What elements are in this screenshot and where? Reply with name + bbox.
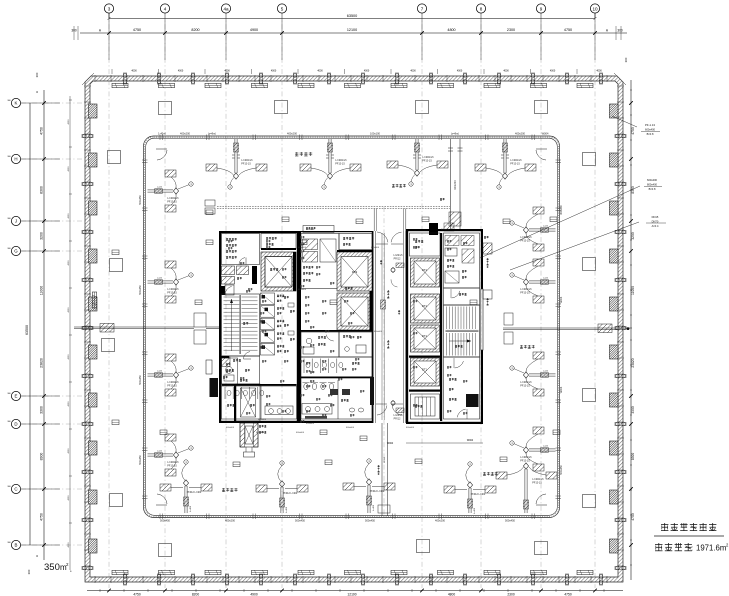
- svg-text:600x600: 600x600: [298, 247, 307, 249]
- svg-text:L=400: L=400: [373, 504, 375, 511]
- svg-text:600x600: 600x600: [258, 419, 267, 421]
- svg-text:500x450: 500x450: [139, 375, 142, 385]
- svg-text:PF10 15: PF10 15: [510, 163, 520, 166]
- svg-text:L=05: L=05: [157, 451, 163, 453]
- svg-text:4900: 4900: [250, 28, 258, 32]
- svg-text:3300: 3300: [39, 406, 43, 414]
- svg-text:W004: W004: [384, 456, 386, 462]
- svg-text:600x400: 600x400: [645, 128, 656, 132]
- svg-text:PF10 15: PF10 15: [241, 163, 251, 166]
- svg-text:600x600: 600x600: [256, 432, 265, 434]
- svg-text:4000: 4000: [364, 70, 370, 73]
- svg-text:400x200: 400x200: [225, 519, 236, 523]
- svg-text:500x450: 500x450: [139, 195, 142, 205]
- svg-text:4000: 4000: [224, 70, 230, 73]
- svg-text:PF10 15: PF10 15: [335, 163, 345, 166]
- svg-text:600x600: 600x600: [346, 427, 355, 429]
- svg-text:PF10 15: PF10 15: [422, 160, 432, 163]
- svg-text:4a: 4a: [223, 6, 229, 11]
- svg-text:600x600: 600x600: [226, 427, 235, 429]
- svg-text:4000: 4000: [68, 166, 70, 172]
- svg-text:L=400: L=400: [286, 506, 288, 513]
- svg-text:PF10 15: PF10 15: [520, 292, 530, 295]
- svg-text:600x600: 600x600: [296, 432, 305, 434]
- svg-text:4000: 4000: [503, 70, 509, 73]
- svg-text:400x200: 400x200: [515, 132, 526, 136]
- svg-text:PF10 15: PF10 15: [167, 201, 177, 204]
- svg-text:4000: 4000: [68, 401, 70, 407]
- svg-text:B: B: [15, 543, 18, 548]
- svg-text:8300: 8300: [39, 453, 43, 461]
- svg-text:600x600: 600x600: [306, 423, 315, 425]
- svg-text:3200: 3200: [631, 232, 635, 240]
- svg-text:11000: 11000: [631, 286, 635, 295]
- svg-text:DN15: DN15: [652, 215, 659, 219]
- svg-text:600x600: 600x600: [441, 229, 450, 231]
- svg-text:4800: 4800: [448, 593, 456, 596]
- svg-text:3: 3: [108, 6, 111, 11]
- svg-text:500x450: 500x450: [365, 519, 376, 523]
- svg-text:1-40x6: 1-40x6: [158, 132, 166, 136]
- svg-text:4750: 4750: [631, 127, 635, 135]
- svg-text:G: G: [14, 249, 18, 254]
- svg-text:500x450: 500x450: [295, 519, 306, 523]
- svg-text:W004: W004: [387, 442, 394, 445]
- svg-text:L=23m/h: L=23m/h: [393, 415, 403, 417]
- svg-text:9: 9: [540, 6, 543, 11]
- svg-text:3300: 3300: [631, 406, 635, 414]
- svg-text:PF012 L=400: PF012 L=400: [187, 491, 202, 494]
- svg-text:500x450: 500x450: [139, 455, 142, 465]
- svg-text:L=05: L=05: [157, 278, 163, 280]
- svg-text:400x200: 400x200: [287, 132, 298, 136]
- svg-text:4900: 4900: [250, 593, 258, 596]
- svg-text:4000: 4000: [317, 70, 323, 73]
- svg-text:400x200: 400x200: [180, 132, 191, 136]
- svg-text:400x200: 400x200: [435, 519, 446, 523]
- svg-text:PF012 L=400: PF012 L=400: [370, 490, 385, 493]
- svg-text:DT1: DT1: [422, 368, 428, 372]
- svg-text:C: C: [14, 487, 17, 492]
- svg-text:K: K: [15, 101, 18, 106]
- svg-text:4000: 4000: [550, 70, 556, 73]
- svg-text:4000: 4000: [131, 70, 137, 73]
- svg-text:500x450: 500x450: [505, 519, 516, 523]
- svg-text:4750: 4750: [39, 127, 43, 135]
- svg-text:4750: 4750: [631, 513, 635, 521]
- svg-text:4750: 4750: [564, 593, 572, 596]
- svg-text:8300: 8300: [631, 453, 635, 461]
- svg-text:4000: 4000: [68, 260, 70, 266]
- svg-text:63500: 63500: [347, 14, 358, 18]
- svg-text:W004: W004: [542, 132, 549, 136]
- svg-text:600x400: 600x400: [454, 180, 457, 190]
- svg-text:4750: 4750: [133, 28, 141, 32]
- svg-text:1971.6m: 1971.6m: [696, 544, 726, 553]
- svg-text:L=400: L=400: [190, 505, 192, 512]
- svg-text:L=23m/h: L=23m/h: [393, 255, 403, 257]
- svg-text:L=400: L=400: [474, 507, 476, 514]
- svg-text:11000: 11000: [39, 286, 43, 296]
- svg-text:DT9: DT9: [352, 270, 358, 274]
- svg-text:100x100: 100x100: [370, 132, 381, 136]
- svg-text:4750: 4750: [39, 513, 43, 521]
- svg-text:(x=8m): (x=8m): [208, 132, 216, 136]
- svg-text:4800: 4800: [447, 28, 455, 32]
- svg-text:8200: 8200: [191, 28, 199, 32]
- svg-text:DT1: DT1: [422, 334, 428, 338]
- svg-text:PF012 L=400: PF012 L=400: [283, 492, 298, 495]
- svg-text:DT1: DT1: [422, 304, 428, 308]
- svg-text:4000: 4000: [68, 542, 70, 548]
- svg-text:L=05: L=05: [157, 187, 163, 189]
- svg-text:350: 350: [44, 562, 60, 573]
- svg-text:PF10 15: PF10 15: [520, 460, 530, 463]
- svg-text:W004: W004: [560, 386, 563, 393]
- svg-text:4000: 4000: [68, 448, 70, 454]
- svg-text:8300: 8300: [39, 186, 43, 194]
- svg-text:A: A: [35, 555, 39, 557]
- svg-text:PF012 L=400: PF012 L=400: [471, 493, 486, 496]
- svg-text:2300: 2300: [507, 28, 515, 32]
- svg-text:23820: 23820: [39, 358, 43, 368]
- svg-text:PF10 15: PF10 15: [167, 385, 177, 388]
- svg-text:PF10 15: PF10 15: [520, 240, 530, 243]
- svg-text:3200: 3200: [39, 232, 43, 240]
- svg-text:8: 8: [480, 6, 483, 11]
- svg-text:500x450: 500x450: [139, 285, 142, 295]
- svg-text:L=05: L=05: [543, 446, 549, 448]
- svg-text:10: 10: [592, 6, 598, 11]
- svg-text:4000: 4000: [596, 70, 602, 73]
- svg-text:J: J: [15, 219, 17, 224]
- svg-text:600x600: 600x600: [374, 331, 383, 333]
- svg-text:DT1: DT1: [422, 268, 428, 272]
- svg-text:4750: 4750: [564, 28, 572, 32]
- svg-text:63500: 63500: [25, 325, 29, 335]
- svg-text:B=0.8: B=0.8: [647, 132, 654, 136]
- svg-text:4000: 4000: [457, 70, 463, 73]
- svg-text:PF10 15: PF10 15: [167, 292, 177, 295]
- svg-text:PF10 15: PF10 15: [520, 385, 530, 388]
- svg-text:4000: 4000: [68, 213, 70, 219]
- svg-text:12100: 12100: [347, 28, 357, 32]
- svg-text:L=05: L=05: [543, 371, 549, 373]
- svg-text:300: 300: [617, 29, 623, 33]
- svg-text:PF012: PF012: [394, 419, 401, 421]
- svg-text:4750: 4750: [133, 593, 141, 596]
- svg-text:2300: 2300: [507, 593, 515, 596]
- svg-text:L=05: L=05: [543, 278, 549, 280]
- svg-text:L=05: L=05: [157, 371, 163, 373]
- svg-text:4000: 4000: [68, 119, 70, 125]
- svg-text:5: 5: [281, 6, 284, 11]
- svg-text:300: 300: [624, 57, 628, 62]
- svg-text:4000: 4000: [178, 70, 184, 73]
- svg-text:PF012: PF012: [394, 259, 401, 261]
- svg-text:D: D: [14, 422, 17, 427]
- svg-text:23820: 23820: [631, 358, 635, 367]
- svg-text:PF-1.13: PF-1.13: [645, 123, 655, 127]
- svg-text:7: 7: [421, 6, 424, 11]
- svg-text:PF10 15: PF10 15: [167, 465, 177, 468]
- svg-text:600x400: 600x400: [647, 178, 658, 182]
- svg-text:A=0.4: A=0.4: [652, 224, 659, 228]
- svg-text:300: 300: [27, 569, 31, 574]
- svg-text:12100: 12100: [347, 593, 356, 596]
- svg-text:L=05: L=05: [543, 226, 549, 228]
- svg-text:4000: 4000: [68, 495, 70, 501]
- svg-text:E: E: [15, 394, 18, 399]
- svg-text:H: H: [14, 157, 17, 162]
- svg-text:4: 4: [164, 6, 167, 11]
- svg-text:4000: 4000: [271, 70, 277, 73]
- svg-text:600x600: 600x600: [298, 289, 307, 291]
- svg-text:300x200: 300x200: [560, 205, 563, 215]
- svg-text:(x=8m): (x=8m): [451, 132, 459, 136]
- svg-text:4000: 4000: [68, 307, 70, 313]
- svg-text:B=0.8: B=0.8: [649, 187, 656, 191]
- svg-text:4000: 4000: [68, 354, 70, 360]
- svg-text:500x450: 500x450: [160, 519, 171, 523]
- svg-text:8200: 8200: [192, 593, 200, 596]
- svg-text::: :: [691, 544, 693, 553]
- svg-text:600x600: 600x600: [406, 427, 415, 429]
- svg-text:A: A: [35, 91, 39, 93]
- svg-text:800x400: 800x400: [647, 183, 658, 187]
- svg-text:W004: W004: [560, 296, 563, 303]
- svg-text:W004: W004: [467, 439, 474, 442]
- svg-text:600x600: 600x600: [306, 229, 315, 231]
- svg-text:PF10 15: PF10 15: [532, 482, 542, 485]
- svg-text:600x600: 600x600: [371, 247, 380, 249]
- svg-text:500x450: 500x450: [560, 465, 563, 475]
- svg-text:300: 300: [35, 72, 39, 77]
- svg-text:4000: 4000: [410, 70, 416, 73]
